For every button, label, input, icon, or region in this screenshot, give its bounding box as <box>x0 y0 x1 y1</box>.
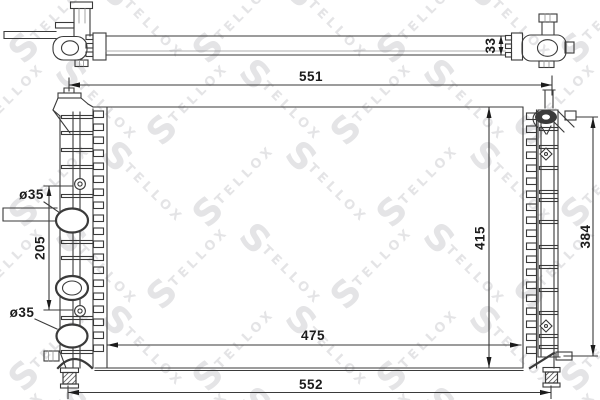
lower-bolt-boss <box>75 306 86 317</box>
dim-label-33: 33 <box>483 37 498 53</box>
left-core-serration <box>93 109 104 368</box>
bottom-port <box>57 325 88 348</box>
dimension-mount-height: 384 <box>564 117 598 356</box>
middle-port-outer <box>56 276 88 300</box>
top-view-bar <box>106 36 506 55</box>
top-left-inlet-pipe <box>56 2 93 36</box>
radiator-technical-drawing: STELLOXSTELLOXSTELLOXSTELLOXSTELLOXSTELL… <box>0 0 600 400</box>
dimension-core-width: 475 <box>107 328 521 348</box>
top-right-fitting <box>506 14 575 68</box>
dimension-core-height: 415 <box>473 107 492 368</box>
right-core-serration <box>527 110 537 368</box>
right-tank-diamond-lower <box>540 320 552 332</box>
dimension-top-length: 551 <box>69 69 552 95</box>
top-view <box>4 2 574 68</box>
left-tank <box>3 88 93 388</box>
dim-label-205: 205 <box>33 236 48 260</box>
top-left-hose-stub <box>4 32 56 39</box>
upper-bolt-boss <box>75 179 86 190</box>
dimension-overall-width: 552 <box>68 377 551 399</box>
callout-bottom-port-diameter: ø35 <box>10 305 57 329</box>
radiator-diagram-svg: 33 551 <box>0 0 600 400</box>
dim-label-475: 475 <box>301 328 325 343</box>
right-tank-diamond-upper <box>540 148 552 160</box>
dim-label-384: 384 <box>578 224 593 248</box>
left-mount-foot <box>44 351 92 388</box>
top-port <box>56 209 88 233</box>
dimension-top-height: 33 <box>483 36 503 55</box>
dim-label-552: 552 <box>299 377 323 392</box>
dim-label-dia35-top: ø35 <box>19 187 44 202</box>
callout-top-port-diameter: ø35 <box>19 187 60 213</box>
dim-label-415: 415 <box>473 226 488 250</box>
dim-label-dia35-bottom: ø35 <box>10 305 35 320</box>
dim-label-551: 551 <box>299 69 323 84</box>
front-view <box>3 88 576 388</box>
top-left-fitting <box>53 33 106 67</box>
